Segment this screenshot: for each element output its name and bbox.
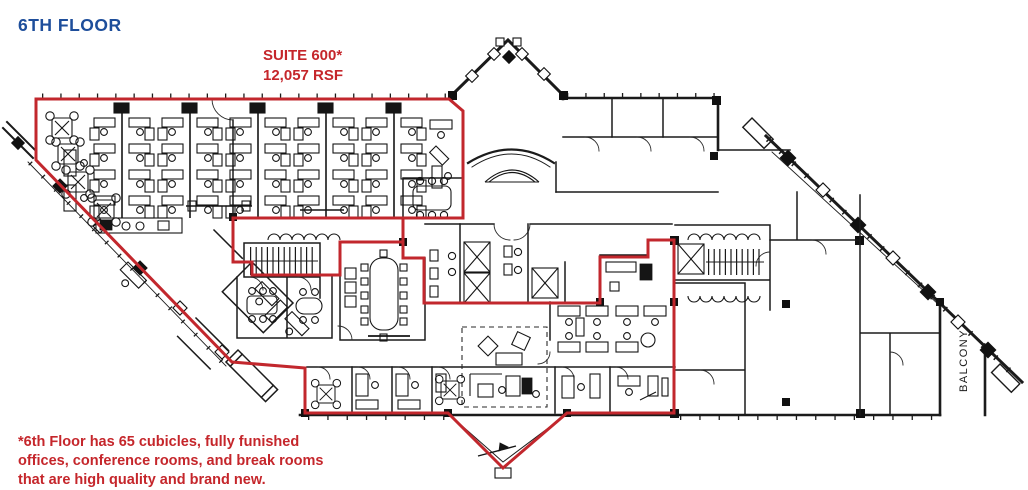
suite-boundary-core-weave xyxy=(233,218,403,275)
meeting-room-tables xyxy=(247,288,322,324)
desk-clusters xyxy=(558,306,666,352)
lounge-seating xyxy=(268,234,340,240)
structural-columns xyxy=(229,91,944,418)
office-desks xyxy=(311,374,668,409)
cubicle-banks xyxy=(90,103,426,218)
diagonal-columns xyxy=(11,38,997,359)
building-walls xyxy=(3,40,1022,415)
labels: 6TH FLOOR SUITE 600* 12,057 RSF *6th Flo… xyxy=(18,15,970,488)
floor-plan-page: 6TH FLOOR SUITE 600* 12,057 RSF *6th Flo… xyxy=(0,0,1028,490)
footnote-line2: offices, conference rooms, and break roo… xyxy=(18,453,323,469)
stairwells xyxy=(248,261,764,262)
footnote-line1: *6th Floor has 65 cubicles, fully funish… xyxy=(18,434,299,450)
elevator-shafts xyxy=(464,242,704,303)
break-room-seating xyxy=(688,234,760,240)
reception-desk xyxy=(485,170,539,182)
floor-plan-drawing: 6TH FLOOR SUITE 600* 12,057 RSF *6th Flo… xyxy=(0,0,1028,490)
balcony-label: BALCONY xyxy=(958,329,970,392)
footnote-line3: that are high quality and brand new. xyxy=(18,472,266,488)
atrium-peak-wall xyxy=(452,40,563,95)
suite-label-line1: SUITE 600* xyxy=(263,47,342,64)
main-conference-table xyxy=(345,250,410,341)
suite-label-line2: 12,057 RSF xyxy=(263,67,343,84)
page-title: 6TH FLOOR xyxy=(18,15,122,35)
